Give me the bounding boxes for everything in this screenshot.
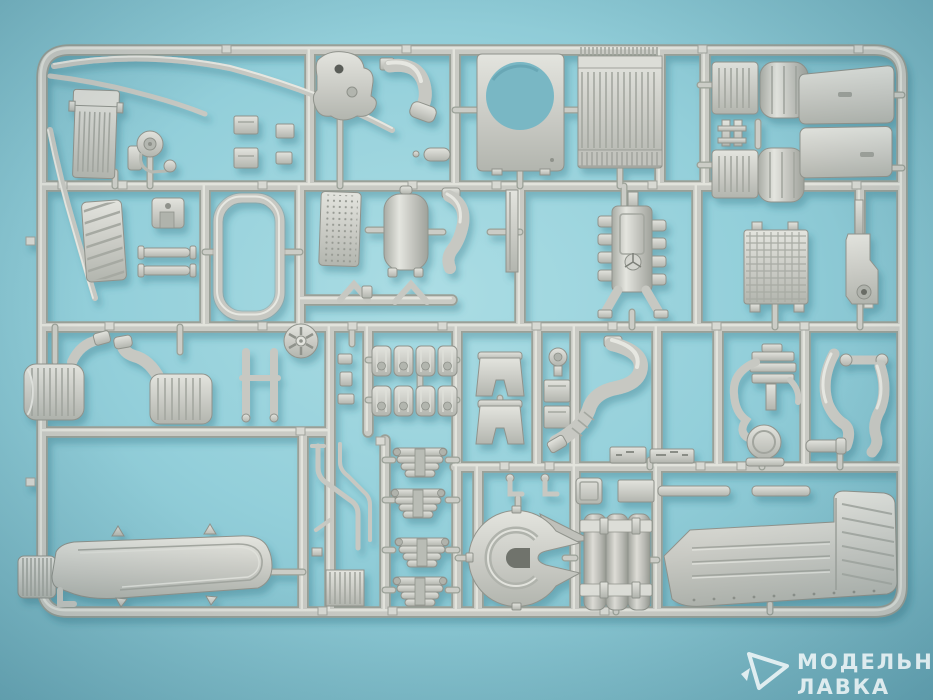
photo-model-kit-sprue: МОДЕЛЬНАЯ ЛАВКА bbox=[0, 0, 933, 700]
photo-vignette bbox=[0, 0, 933, 700]
sprue-photo-svg: МОДЕЛЬНАЯ ЛАВКА bbox=[0, 0, 933, 700]
watermark-line2: ЛАВКА bbox=[797, 675, 890, 699]
watermark-line1: МОДЕЛЬНАЯ bbox=[797, 650, 933, 674]
